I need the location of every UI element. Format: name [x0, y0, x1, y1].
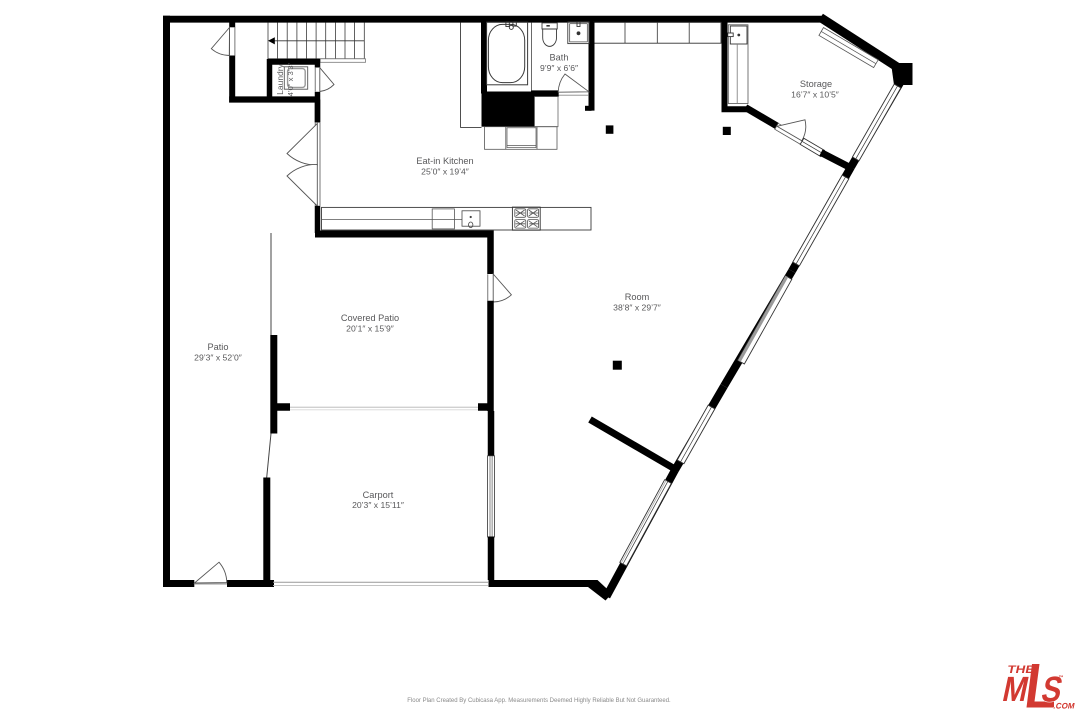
- svg-text:16’7″ x 10’5″: 16’7″ x 10’5″: [791, 89, 839, 99]
- svg-text:29’3″ x 52’0″: 29’3″ x 52’0″: [194, 353, 242, 363]
- svg-text:20’1″ x 15’9″: 20’1″ x 15’9″: [346, 324, 394, 334]
- svg-text:Storage: Storage: [800, 79, 832, 89]
- svg-text:Laundry: Laundry: [275, 63, 285, 94]
- svg-text:Patio: Patio: [208, 342, 229, 352]
- svg-text:38’8″ x 29’7″: 38’8″ x 29’7″: [613, 303, 661, 313]
- svg-text:Eat-in Kitchen: Eat-in Kitchen: [416, 156, 473, 166]
- svg-text:9’9″ x 6’6″: 9’9″ x 6’6″: [540, 63, 578, 73]
- svg-text:20’3″ x 15’11″: 20’3″ x 15’11″: [352, 500, 404, 510]
- svg-text:.COM: .COM: [1053, 701, 1076, 710]
- svg-text:Carport: Carport: [363, 490, 394, 500]
- svg-text:Room: Room: [625, 292, 650, 302]
- svg-text:Covered Patio: Covered Patio: [341, 313, 399, 323]
- svg-text:4’0″ x 3’3″: 4’0″ x 3’3″: [286, 62, 295, 96]
- svg-text:™: ™: [1059, 675, 1064, 681]
- svg-text:Bath: Bath: [550, 53, 569, 63]
- svg-text:25’0″ x 19’4″: 25’0″ x 19’4″: [421, 167, 469, 177]
- svg-text:Floor Plan Created By Cubicasa: Floor Plan Created By Cubicasa App. Meas…: [407, 698, 671, 704]
